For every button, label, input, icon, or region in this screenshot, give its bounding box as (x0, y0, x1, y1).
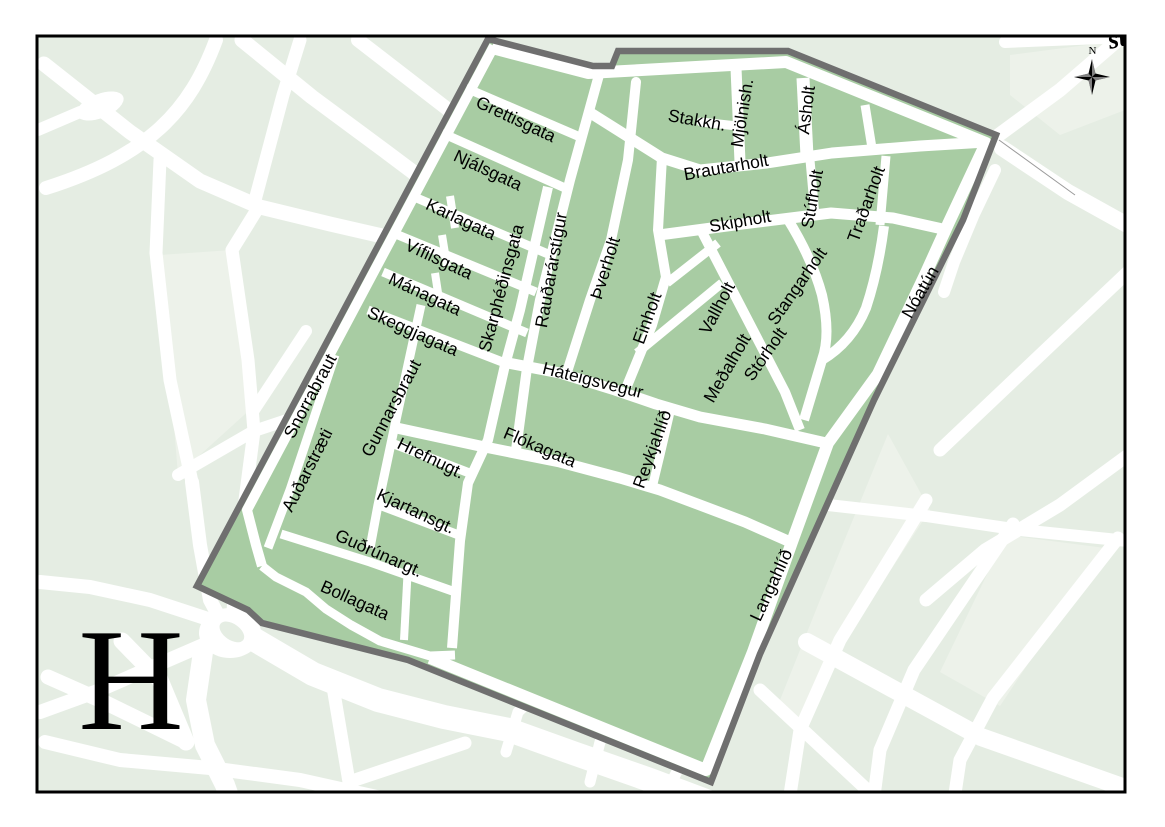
svg-text:H: H (78, 599, 183, 761)
svg-text:N: N (1089, 45, 1097, 57)
